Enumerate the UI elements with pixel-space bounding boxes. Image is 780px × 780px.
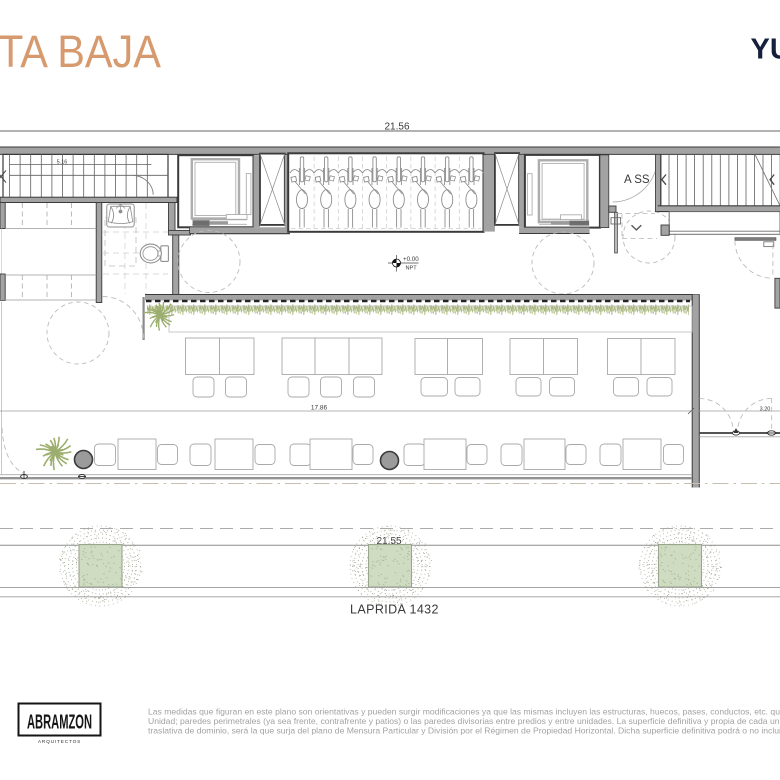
svg-text:3.20: 3.20 [760,407,771,413]
svg-text:ARQUITECTOS: ARQUITECTOS [38,739,81,745]
svg-text:TA BAJA: TA BAJA [0,26,161,77]
svg-text:+0.00: +0.00 [403,256,419,263]
svg-text:YU: YU [751,34,780,66]
svg-text:Unidad; paredes perimetrales (: Unidad; paredes perimetrales (ya sea fre… [148,716,780,726]
svg-text:NPT: NPT [406,266,418,272]
svg-text:ABRAMZON: ABRAMZON [27,712,92,734]
svg-text:Las medidas que figuran en est: Las medidas que figuran en este plano so… [148,707,780,717]
svg-text:5.16: 5.16 [57,159,68,165]
svg-text:A SS: A SS [624,174,650,186]
svg-text:17.86: 17.86 [311,405,328,412]
svg-text:LAPRIDA 1432: LAPRIDA 1432 [350,603,439,617]
svg-text:21.56: 21.56 [384,122,409,133]
svg-text:traslativa de dominio, será la: traslativa de dominio, será la que surja… [148,726,780,736]
